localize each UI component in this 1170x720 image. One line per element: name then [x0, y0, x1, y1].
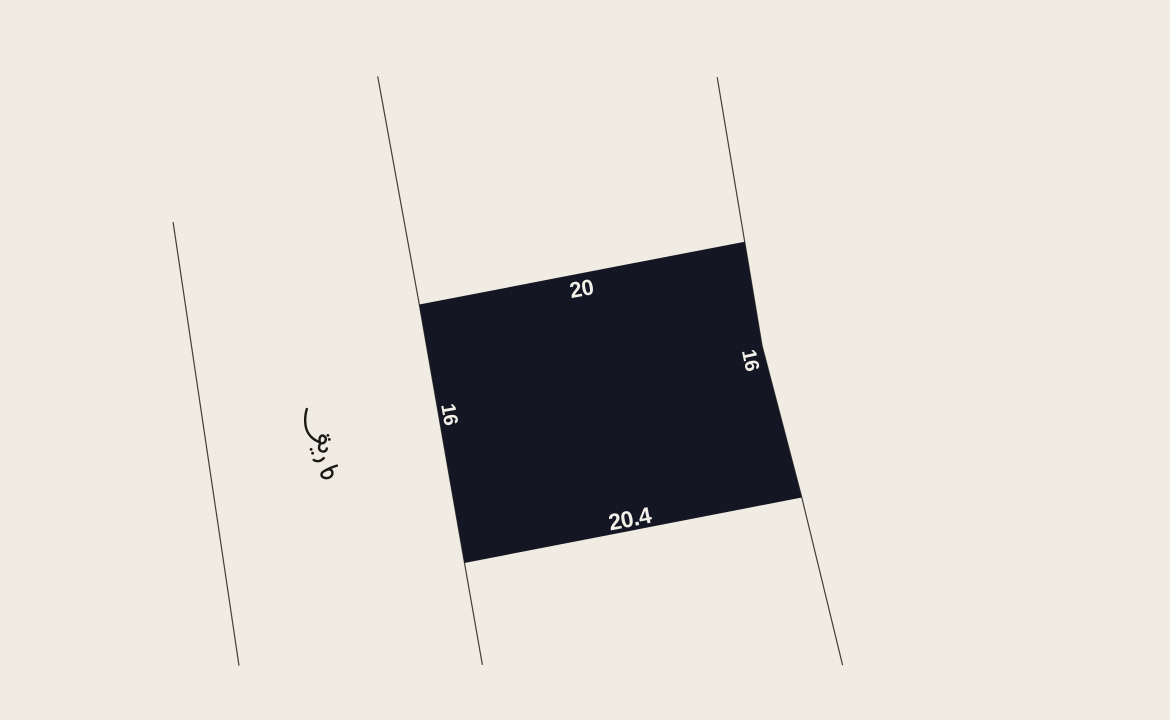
- svg-text:20: 20: [568, 274, 596, 303]
- svg-text:16: 16: [436, 402, 461, 427]
